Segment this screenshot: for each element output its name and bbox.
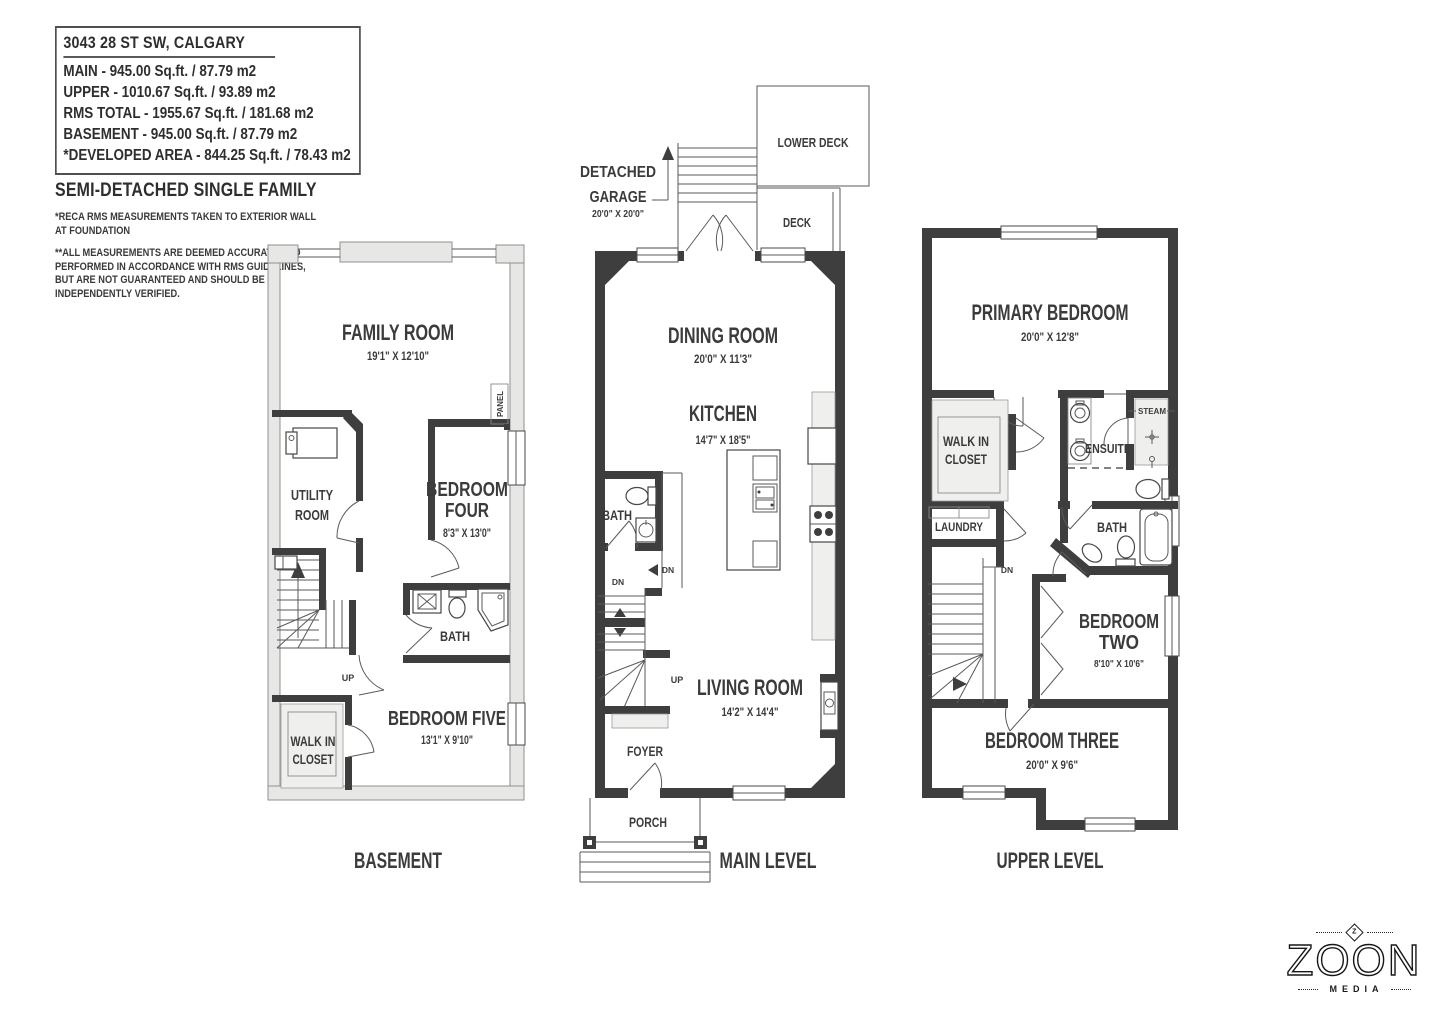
dim-detached-garage: 20'0" X 20'0" [592, 209, 644, 220]
room-label-utility-1: UTILITY [291, 487, 333, 504]
bedroom-four-door [431, 540, 459, 577]
basement-toilet-icon [449, 590, 466, 618]
logo-name: ZOON [1276, 940, 1432, 982]
basement-bath-door [406, 615, 432, 653]
room-dim-kitchen: 14'7" X 18'5" [696, 433, 751, 447]
room-label-upper-bath: BATH [1097, 519, 1127, 535]
corner-brace [811, 764, 835, 788]
upper-stairs [928, 558, 1002, 703]
ensuite-toilet-icon [1136, 479, 1169, 499]
fireplace-icon [820, 674, 840, 738]
label-upper-dn: DN [1001, 565, 1013, 575]
floor-title-basement: BASEMENT [354, 848, 442, 873]
room-label-kitchen: KITCHEN [689, 401, 757, 426]
zoon-media-logo: Z ZOON MEDIA [1276, 924, 1432, 994]
logo-ornament-left-2 [1298, 989, 1318, 990]
basement-floorplan: FAMILY ROOM 19'1" X 12'10" UTILITY ROOM … [255, 238, 545, 880]
basement-window-right-upper [508, 431, 525, 485]
upper-window-bottom-left [963, 786, 1005, 799]
room-label-bedroom-two-1: BEDROOM [1079, 611, 1159, 633]
label-steam: STEAM [1138, 406, 1166, 416]
bedroom-two-closet-bifold [1041, 586, 1063, 695]
label-panel: PANEL [496, 391, 505, 417]
room-label-upper-closet-1: WALK IN [943, 433, 989, 449]
kitchen-island [727, 450, 780, 570]
room-label-dining-room: DINING ROOM [668, 323, 778, 348]
room-label-bedroom-two-2: TWO [1099, 632, 1139, 654]
area-developed: *DEVELOPED AREA - 844.25 Sq.ft. / 78.43 … [63, 145, 350, 166]
bedroom-three-door [1006, 704, 1034, 731]
label-porch: PORCH [629, 814, 667, 830]
room-dim-bedroom-five: 13'1" X 9'10" [421, 735, 473, 747]
upper-window-top [1001, 226, 1097, 239]
room-dim-primary-bedroom: 20'0" X 12'8" [1021, 330, 1079, 344]
label-detached-garage-1: DETACHED [580, 164, 656, 181]
room-dim-bedroom-four: 8'3" X 13'0" [443, 528, 491, 540]
disclaimer-note-1: *RECA RMS MEASUREMENTS TAKEN TO EXTERIOR… [55, 211, 374, 238]
laundry-door [1004, 509, 1026, 541]
main-window-bottom [733, 786, 785, 800]
room-label-bedroom-three: BEDROOM THREE [985, 728, 1119, 753]
label-detached-garage-2: GARAGE [590, 189, 647, 206]
room-label-living-room: LIVING ROOM [697, 675, 803, 700]
basement-window-right-lower [508, 703, 525, 745]
room-label-utility-2: ROOM [295, 507, 329, 524]
area-rms-total: RMS TOTAL - 1955.67 Sq.ft. / 181.68 m2 [63, 103, 350, 124]
floor-title-main-level: MAIN LEVEL [720, 848, 817, 873]
water-heater-icon [275, 556, 297, 569]
label-deck: DECK [783, 215, 811, 230]
bedroom-five-door [359, 655, 384, 695]
room-dim-bedroom-three: 20'0" X 9'6" [1026, 758, 1078, 772]
basement-stairs [277, 560, 349, 648]
patio-french-doors [686, 215, 753, 251]
area-main: MAIN - 945.00 Sq.ft. / 87.79 m2 [63, 61, 350, 82]
main-vanity-icon [636, 518, 656, 542]
upper-window-right-bedroom-two [1165, 596, 1179, 656]
room-label-laundry: LAUNDRY [935, 522, 983, 534]
stove-icon [810, 506, 836, 542]
ensuite-sink-1 [1071, 401, 1090, 423]
label-lower-deck: LOWER DECK [778, 135, 849, 150]
room-label-ensuite: ENSUITE [1085, 441, 1131, 456]
room-label-basement-closet-1: WALK IN [291, 733, 336, 749]
logo-media-text: MEDIA [1325, 984, 1384, 994]
room-label-bedroom-four-2: FOUR [445, 500, 489, 522]
deck-stairs [678, 143, 757, 250]
label-dn-2: DN [612, 577, 624, 587]
basement-closet-door [348, 725, 374, 757]
label-dn-1: DN [662, 565, 674, 575]
main-window-top-left [637, 248, 678, 262]
fridge-icon [808, 428, 836, 464]
logo-ornament-right-2 [1391, 989, 1411, 990]
main-toilet-icon [626, 487, 656, 505]
main-window-top-right [761, 248, 805, 262]
label-main-up: UP [671, 675, 684, 685]
primary-bedroom-door [1016, 418, 1044, 452]
property-type: SEMI-DETACHED SINGLE FAMILY [55, 180, 374, 202]
basement-shower-icon [478, 589, 508, 631]
logo-ornament-right [1367, 932, 1393, 933]
main-level-floorplan: DETACHED GARAGE 20'0" X 20'0" LOWER DECK… [575, 80, 875, 895]
bathtub-icon [1140, 509, 1172, 565]
property-address: 3043 28 ST SW, CALGARY [63, 33, 275, 58]
room-label-family-room: FAMILY ROOM [342, 320, 454, 345]
basement-vanity-icon [413, 590, 441, 613]
main-bath-door [606, 521, 637, 548]
upper-window-bottom-right [1085, 818, 1135, 831]
upper-toilet-icon [1116, 536, 1135, 566]
label-basement-up: UP [342, 673, 355, 683]
floorplan-sheet: 3043 28 ST SW, CALGARY MAIN - 945.00 Sq.… [0, 0, 1449, 1024]
room-dim-bedroom-two: 8'10" X 10'6" [1094, 658, 1144, 670]
logo-z: Z [1352, 929, 1356, 936]
corner-brace [605, 261, 629, 285]
main-stairs [598, 588, 670, 728]
room-dim-living-room: 14'2" X 14'4" [722, 705, 779, 719]
room-dim-dining-room: 20'0" X 11'3" [694, 352, 752, 366]
room-label-main-bath: BATH [602, 507, 632, 523]
room-label-basement-closet-2: CLOSET [293, 751, 334, 767]
room-label-foyer: FOYER [627, 743, 663, 759]
floor-title-upper-level: UPPER LEVEL [997, 848, 1104, 873]
logo-ornament-left [1316, 932, 1342, 933]
furnace-icon [286, 428, 337, 458]
room-label-primary-bedroom: PRIMARY BEDROOM [972, 300, 1129, 325]
measurement-info-box: 3043 28 ST SW, CALGARY MAIN - 945.00 Sq.… [55, 26, 361, 175]
porch-steps [580, 852, 710, 882]
upper-level-floorplan: PRIMARY BEDROOM 20'0" X 12'8" WALK IN CL… [910, 215, 1200, 875]
room-label-upper-closet-2: CLOSET [945, 451, 987, 467]
utility-room-door [337, 501, 359, 543]
front-door [630, 763, 662, 790]
room-label-bedroom-five: BEDROOM FIVE [388, 708, 506, 730]
room-label-bedroom-four-1: BEDROOM [426, 479, 508, 501]
corner-brace [811, 261, 835, 285]
room-dim-family-room: 19'1" X 12'10" [367, 349, 429, 363]
area-upper: UPPER - 1010.67 Sq.ft. / 93.89 m2 [63, 82, 350, 103]
area-basement: BASEMENT - 945.00 Sq.ft. / 87.79 m2 [63, 124, 350, 145]
room-label-basement-bath: BATH [440, 628, 470, 644]
